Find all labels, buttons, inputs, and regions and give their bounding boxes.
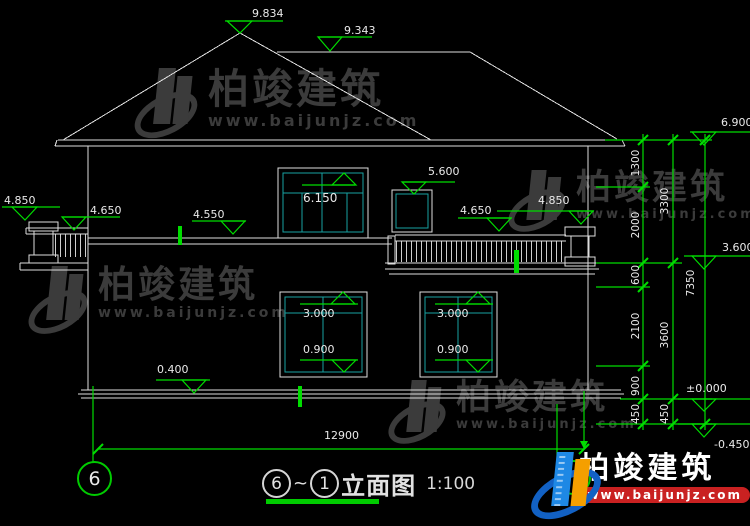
elevation-label-belt-mid: 4.550 <box>193 209 225 220</box>
elevation-label-window2f-top: 6.150 <box>303 192 337 204</box>
window-top-label: 3.000 <box>303 308 335 319</box>
dim-3300: 3300 <box>660 188 671 215</box>
elevation-linework <box>0 0 750 526</box>
dim-450: 450 <box>660 404 671 424</box>
brand-logo: 柏竣建筑 www.baijunjz.com <box>538 452 750 524</box>
title-axis-left-label: 6 <box>271 474 282 494</box>
title-axis-circle-left: 6 <box>262 469 291 498</box>
title-axis-right-label: 1 <box>319 474 330 494</box>
dim-900: 900 <box>631 376 642 396</box>
elevation-label-belt-right: 4.650 <box>460 205 492 216</box>
dim-2100: 2100 <box>631 313 642 340</box>
elevation-label-plinth: 0.400 <box>157 364 189 375</box>
elevation-label-roof-peak: 9.834 <box>252 8 284 19</box>
drawing-title: 6 ~ 1 立面图 1:100 <box>262 466 475 501</box>
axis-bubble-6-label: 6 <box>88 468 100 490</box>
title-underline <box>266 499 379 504</box>
elevation-drawing-canvas: 柏竣建筑 www.baijunjz.com 柏竣建筑 www.baijunjz.… <box>0 0 750 526</box>
window-top-label: 3.000 <box>437 308 469 319</box>
dim-600: 600 <box>631 265 642 285</box>
dim-450: 450 <box>631 404 642 424</box>
window-sill-label: 0.900 <box>303 344 335 355</box>
elevation-label-small-window-top: 5.600 <box>428 166 460 177</box>
window-sill-label: 0.900 <box>437 344 469 355</box>
elevation-label-ground: ±0.000 <box>686 383 727 394</box>
title-axis-circle-right: 1 <box>310 469 339 498</box>
elevation-label-3600: 3.600 <box>722 242 750 253</box>
dim-1300: 1300 <box>631 150 642 177</box>
dim-3600: 3600 <box>660 322 671 349</box>
brand-logo-icon <box>538 452 573 516</box>
total-width-dimension: 12900 <box>324 430 359 441</box>
dim-7350: 7350 <box>686 270 697 297</box>
brand-logo-name: 柏竣建筑 <box>579 452 750 485</box>
title-scale: 1:100 <box>426 474 475 494</box>
elevation-label-eave: 6.900 <box>721 117 750 128</box>
axis-bubble-6: 6 <box>77 461 112 496</box>
title-name: 立面图 <box>341 466 416 501</box>
elevation-label-parapet-left: 4.850 <box>4 195 36 206</box>
brand-logo-url: www.baijunjz.com <box>579 487 750 503</box>
elevation-label-parapet-right: 4.850 <box>538 195 570 206</box>
dim-2000: 2000 <box>631 212 642 239</box>
title-tilde: ~ <box>293 473 308 494</box>
elevation-label-belt-left: 4.650 <box>90 205 122 216</box>
elevation-label-roof-ridge: 9.343 <box>344 25 376 36</box>
elevation-label-below-ground: -0.450 <box>714 439 749 450</box>
